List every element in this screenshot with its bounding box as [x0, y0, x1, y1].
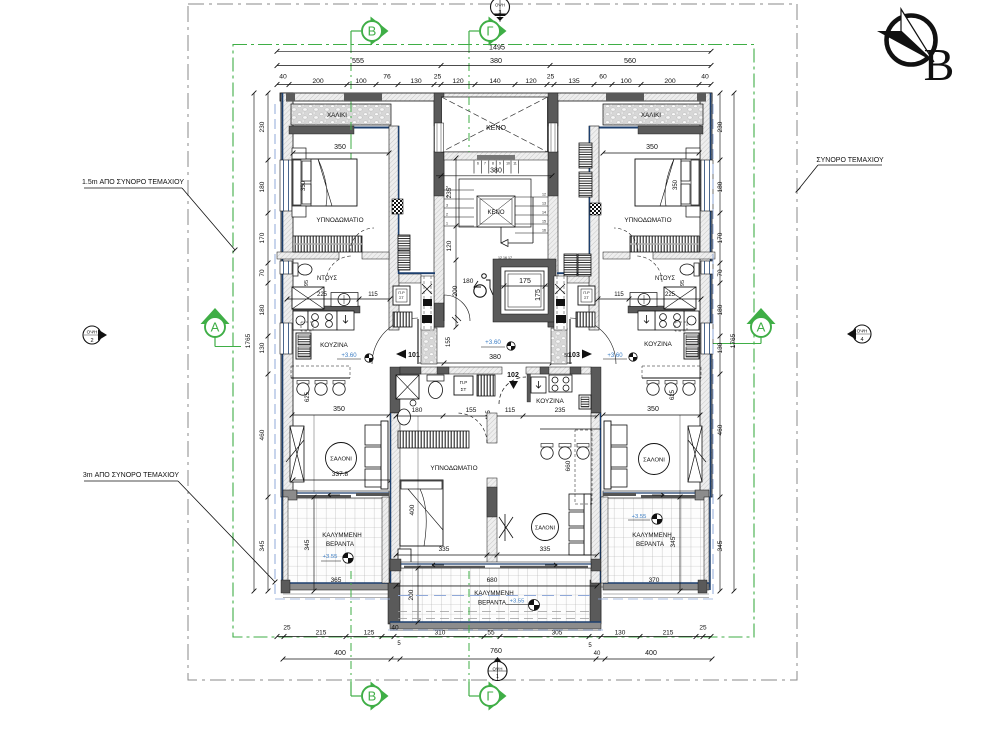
svg-text:345: 345	[259, 540, 266, 551]
svg-text:ΚΑΛΥΜΜΕΝΗ: ΚΑΛΥΜΜΕΝΗ	[322, 532, 361, 539]
svg-text:9: 9	[499, 162, 501, 166]
svg-text:140: 140	[489, 78, 501, 85]
svg-text:ΧΑΛΙΚΙ: ΧΑΛΙΚΙ	[327, 112, 347, 119]
svg-text:555: 555	[352, 56, 364, 65]
svg-text:40: 40	[594, 651, 601, 657]
svg-text:Α: Α	[757, 320, 766, 335]
svg-text:ΚΟΥΖΙΝΑ: ΚΟΥΖΙΝΑ	[320, 342, 348, 349]
svg-text:125: 125	[364, 630, 375, 637]
svg-text:345: 345	[304, 539, 311, 550]
svg-text:ΣΤ: ΣΤ	[584, 296, 589, 300]
svg-text:2: 2	[446, 213, 448, 217]
svg-text:ΒΕΡΑΝΤΑ: ΒΕΡΑΝΤΑ	[478, 600, 507, 607]
svg-text:Π.Ρ: Π.Ρ	[398, 291, 405, 295]
svg-text:ΚΕΝΟ: ΚΕΝΟ	[486, 125, 506, 132]
svg-text:680: 680	[487, 577, 498, 584]
svg-text:560: 560	[624, 56, 636, 65]
svg-text:370: 370	[649, 577, 660, 584]
svg-text:ΥΠΝΟΔΩΜΑΤΙΟ: ΥΠΝΟΔΩΜΑΤΙΟ	[430, 465, 477, 472]
svg-text:ΣΤ: ΣΤ	[461, 387, 467, 392]
svg-text:130: 130	[259, 342, 266, 353]
svg-text:70: 70	[717, 269, 724, 277]
svg-text:ΣΑΛΟΝΙ: ΣΑΛΟΝΙ	[330, 457, 352, 463]
svg-text:305: 305	[552, 630, 563, 637]
svg-text:155: 155	[446, 336, 452, 347]
svg-text:180: 180	[412, 407, 423, 414]
svg-text:350: 350	[333, 406, 345, 413]
svg-text:B: B	[924, 39, 955, 90]
svg-text:225: 225	[665, 292, 676, 298]
svg-text:337.8: 337.8	[332, 471, 349, 478]
svg-text:350: 350	[334, 144, 346, 151]
svg-text:175: 175	[535, 289, 542, 301]
svg-text:120: 120	[452, 78, 464, 85]
svg-text:2: 2	[90, 338, 93, 344]
svg-text:310: 310	[435, 630, 446, 637]
svg-text:+3.60: +3.60	[341, 353, 357, 359]
svg-text:225: 225	[317, 292, 328, 298]
svg-text:ΟΨΗ: ΟΨΗ	[857, 329, 868, 334]
svg-text:130: 130	[717, 342, 724, 353]
svg-text:1765: 1765	[245, 333, 252, 348]
svg-text:625: 625	[305, 391, 311, 402]
svg-text:25: 25	[699, 625, 707, 632]
svg-text:ΚΟΥΖΙΝΑ: ΚΟΥΖΙΝΑ	[644, 341, 672, 348]
svg-text:40: 40	[391, 625, 399, 632]
svg-text:8: 8	[492, 162, 494, 166]
svg-text:Γ: Γ	[486, 24, 493, 39]
svg-text:380: 380	[490, 56, 502, 65]
svg-text:+3.55: +3.55	[510, 599, 525, 605]
svg-text:350: 350	[301, 180, 307, 191]
svg-text:155: 155	[466, 407, 477, 414]
svg-text:230: 230	[259, 121, 266, 132]
svg-text:70: 70	[259, 269, 266, 277]
svg-text:200: 200	[452, 285, 459, 296]
svg-text:660: 660	[565, 460, 572, 471]
svg-text:170: 170	[717, 232, 724, 243]
svg-text:+3.55: +3.55	[632, 514, 647, 520]
svg-text:Β: Β	[368, 24, 377, 39]
svg-text:180: 180	[717, 304, 724, 315]
svg-text:25: 25	[434, 74, 442, 81]
svg-text:60: 60	[599, 74, 607, 81]
svg-text:25: 25	[283, 625, 291, 632]
svg-text:1.5m ΑΠΟ ΣΥΝΟΡΟ ΤΕΜΑΧΙΟΥ: 1.5m ΑΠΟ ΣΥΝΟΡΟ ΤΕΜΑΧΙΟΥ	[82, 179, 184, 186]
svg-text:115: 115	[505, 407, 516, 414]
svg-text:+3.55: +3.55	[323, 554, 338, 560]
svg-text:1765: 1765	[730, 333, 737, 348]
svg-text:40: 40	[701, 74, 709, 81]
svg-text:12: 12	[542, 193, 546, 197]
svg-text:ΚΑΛΥΜΜΕΝΗ: ΚΑΛΥΜΜΕΝΗ	[632, 532, 671, 539]
svg-text:100: 100	[620, 78, 632, 85]
svg-text:200: 200	[408, 589, 415, 600]
svg-text:115: 115	[368, 292, 378, 298]
svg-text:Π.Ρ: Π.Ρ	[583, 291, 590, 295]
svg-text:350: 350	[673, 179, 679, 190]
svg-text:180: 180	[259, 181, 266, 192]
svg-text:102: 102	[507, 372, 519, 379]
svg-text:3: 3	[446, 204, 448, 208]
svg-text:400: 400	[334, 650, 346, 657]
svg-text:+3.60: +3.60	[485, 339, 501, 346]
svg-text:235: 235	[446, 187, 453, 198]
svg-text:180: 180	[717, 181, 724, 192]
svg-text:50: 50	[564, 353, 570, 359]
svg-text:4: 4	[860, 337, 863, 343]
svg-text:345: 345	[717, 540, 724, 551]
svg-text:3m ΑΠΟ ΣΥΝΟΡΟ ΤΕΜΑΧΙΟΥ: 3m ΑΠΟ ΣΥΝΟΡΟ ΤΕΜΑΧΙΟΥ	[83, 472, 179, 479]
svg-text:ΣΑΛΟΝΙ: ΣΑΛΟΝΙ	[535, 526, 555, 532]
svg-text:235: 235	[555, 407, 566, 414]
svg-text:16: 16	[542, 229, 546, 233]
svg-text:40: 40	[279, 74, 287, 81]
svg-text:55: 55	[487, 630, 495, 637]
svg-text:ΒΕΡΑΝΤΑ: ΒΕΡΑΝΤΑ	[636, 541, 665, 548]
svg-text:400: 400	[409, 504, 416, 515]
svg-text:400: 400	[645, 650, 657, 657]
svg-text:ΥΠΝΟΔΩΜΑΤΙΟ: ΥΠΝΟΔΩΜΑΤΙΟ	[624, 217, 671, 224]
svg-text:ΣΑΛΟΝΙ: ΣΑΛΟΝΙ	[643, 458, 665, 464]
svg-text:460: 460	[259, 429, 266, 440]
svg-text:130: 130	[410, 78, 422, 85]
svg-text:120: 120	[525, 78, 537, 85]
svg-text:200: 200	[664, 78, 676, 85]
svg-text:Γ: Γ	[486, 689, 493, 704]
svg-text:14: 14	[542, 211, 546, 215]
svg-text:365: 365	[331, 577, 342, 584]
svg-text:230: 230	[717, 121, 724, 132]
svg-text:Β: Β	[368, 689, 377, 704]
svg-text:13: 13	[542, 202, 546, 206]
svg-text:ΣΥΝΟΡΟ ΤΕΜΑΧΙΟΥ: ΣΥΝΟΡΟ ΤΕΜΑΧΙΟΥ	[816, 157, 884, 164]
svg-text:ΟΨΗ: ΟΨΗ	[87, 330, 98, 335]
svg-text:ΝΤΟΥΣ: ΝΤΟΥΣ	[655, 276, 675, 282]
svg-text:95: 95	[304, 280, 310, 286]
svg-text:Π.Ρ: Π.Ρ	[460, 380, 468, 385]
svg-text:380: 380	[489, 354, 501, 361]
svg-text:175: 175	[519, 278, 531, 285]
svg-text:10: 10	[506, 162, 510, 166]
svg-text:335: 335	[439, 546, 450, 553]
svg-text:15: 15	[542, 220, 546, 224]
svg-text:ΚΕΝΟ: ΚΕΝΟ	[487, 210, 504, 216]
svg-text:11: 11	[513, 162, 517, 166]
svg-text:215: 215	[663, 630, 674, 637]
svg-text:ΝΤΟΥΣ: ΝΤΟΥΣ	[317, 276, 337, 282]
svg-text:350: 350	[646, 144, 658, 151]
svg-text:130: 130	[615, 630, 626, 637]
svg-text:115: 115	[614, 292, 624, 298]
svg-text:200: 200	[312, 78, 324, 85]
svg-text:345: 345	[670, 536, 677, 547]
svg-text:625: 625	[670, 389, 676, 400]
svg-text:25: 25	[547, 74, 555, 81]
svg-text:6: 6	[477, 162, 479, 166]
svg-text:460: 460	[717, 424, 724, 435]
svg-text:76: 76	[383, 74, 391, 81]
svg-text:ΧΑΛΙΚΙ: ΧΑΛΙΚΙ	[641, 112, 661, 119]
svg-text:335: 335	[540, 546, 551, 553]
svg-text:760: 760	[490, 648, 502, 655]
svg-text:1: 1	[446, 222, 448, 226]
svg-text:120: 120	[446, 240, 453, 251]
svg-text:95: 95	[680, 280, 686, 286]
svg-text:7: 7	[484, 162, 486, 166]
svg-text:ΥΠΝΟΔΩΜΑΤΙΟ: ΥΠΝΟΔΩΜΑΤΙΟ	[316, 217, 363, 224]
svg-text:350: 350	[647, 406, 659, 413]
svg-text:1495: 1495	[489, 43, 505, 52]
svg-text:ΒΕΡΑΝΤΑ: ΒΕΡΑΝΤΑ	[326, 541, 355, 548]
svg-text:ΚΟΥΖΙΝΑ: ΚΟΥΖΙΝΑ	[536, 398, 564, 405]
svg-text:380: 380	[490, 168, 502, 175]
svg-text:180: 180	[259, 304, 266, 315]
svg-text:180: 180	[463, 278, 474, 285]
svg-text:135: 135	[568, 78, 580, 85]
svg-text:100: 100	[355, 78, 367, 85]
svg-text:215: 215	[316, 630, 327, 637]
svg-text:170: 170	[259, 232, 266, 243]
svg-text:ΣΤ: ΣΤ	[399, 296, 404, 300]
svg-text:Α: Α	[211, 320, 220, 335]
